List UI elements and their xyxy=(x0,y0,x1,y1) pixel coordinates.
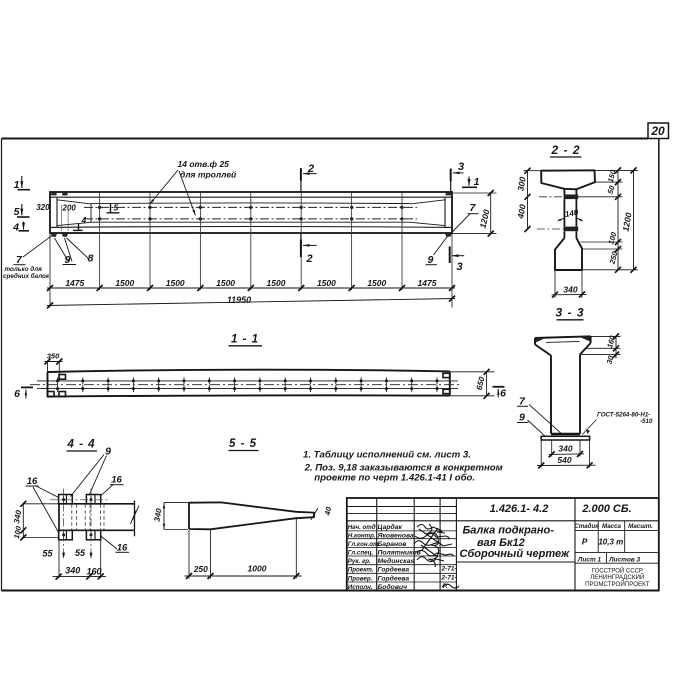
svg-text:6: 6 xyxy=(500,388,506,400)
svg-text:55: 55 xyxy=(75,548,86,558)
svg-text:1500: 1500 xyxy=(166,278,185,288)
svg-text:Гл.спец.: Гл.спец. xyxy=(348,550,374,557)
svg-text:1000: 1000 xyxy=(248,564,267,574)
svg-text:340: 340 xyxy=(65,566,80,576)
svg-text:Нач. отд: Нач. отд xyxy=(348,524,376,531)
svg-text:Цардак: Цардак xyxy=(378,523,403,531)
svg-text:650: 650 xyxy=(475,375,487,391)
svg-text:3 - 3: 3 - 3 xyxy=(555,306,584,320)
svg-text:1500: 1500 xyxy=(367,278,386,288)
svg-text:средних балок: средних балок xyxy=(3,272,50,280)
svg-text:400: 400 xyxy=(515,203,528,220)
svg-text:40: 40 xyxy=(323,505,334,517)
svg-text:4: 4 xyxy=(81,215,87,225)
svg-text:100: 100 xyxy=(12,525,23,540)
svg-text:340: 340 xyxy=(152,507,163,522)
svg-text:ЛЕНИНГРАДСКИЙ: ЛЕНИНГРАДСКИЙ xyxy=(590,573,644,581)
svg-text:только для: только для xyxy=(5,265,43,273)
svg-text:20: 20 xyxy=(650,124,665,138)
svg-text:200: 200 xyxy=(62,204,77,213)
svg-text:Стадия: Стадия xyxy=(574,523,599,530)
svg-text:2 - 2: 2 - 2 xyxy=(550,143,580,157)
svg-text:10,3 т: 10,3 т xyxy=(598,538,623,547)
svg-text:14 отв.ф 25: 14 отв.ф 25 xyxy=(178,159,230,169)
svg-text:340: 340 xyxy=(12,509,23,524)
svg-text:4 - 4: 4 - 4 xyxy=(66,439,95,451)
svg-text:300: 300 xyxy=(515,176,527,192)
svg-text:1475: 1475 xyxy=(418,278,437,288)
svg-text:55: 55 xyxy=(42,549,53,559)
svg-text:16: 16 xyxy=(27,476,38,487)
svg-text:350: 350 xyxy=(47,352,60,361)
svg-text:4: 4 xyxy=(12,222,19,234)
svg-text:Сборочный чертеж: Сборочный чертеж xyxy=(460,548,570,560)
svg-text:Н.контр.: Н.контр. xyxy=(348,533,376,540)
svg-text:2.000 СБ.: 2.000 СБ. xyxy=(581,503,631,515)
svg-text:1475: 1475 xyxy=(65,278,84,288)
svg-text:1500: 1500 xyxy=(267,278,286,288)
svg-text:1. Таблицу исполнений см. лис: 1. Таблицу исполнений см. лист 3. xyxy=(303,450,471,461)
svg-text:7: 7 xyxy=(519,396,526,408)
svg-text:Балка подкрано-: Балка подкрано- xyxy=(463,525,555,537)
svg-text:для троллей: для троллей xyxy=(180,170,237,180)
svg-text:Масса: Масса xyxy=(602,523,622,530)
svg-text:340: 340 xyxy=(558,444,572,454)
svg-text:Провер.: Провер. xyxy=(348,575,373,582)
svg-text:1500: 1500 xyxy=(115,278,134,288)
svg-text:Мединская: Мединская xyxy=(378,557,415,565)
svg-text:Гордеева: Гордеева xyxy=(378,566,410,574)
svg-text:2: 2 xyxy=(307,163,314,175)
svg-text:1500: 1500 xyxy=(317,278,336,288)
svg-text:9: 9 xyxy=(519,412,525,424)
svg-text:250: 250 xyxy=(193,564,208,574)
svg-text:Бодович: Бодович xyxy=(378,583,408,591)
svg-text:Р: Р xyxy=(582,537,588,547)
svg-text:ПРОМСТРОЙПРОЕКТ: ПРОМСТРОЙПРОЕКТ xyxy=(585,580,650,588)
svg-text:5: 5 xyxy=(114,203,119,213)
svg-text:проекте по черт 1.426.1-41 I: проекте по черт 1.426.1-41 I обо. xyxy=(314,473,475,484)
svg-text:340: 340 xyxy=(563,285,577,295)
svg-text:1: 1 xyxy=(474,176,480,188)
svg-text:5 - 5: 5 - 5 xyxy=(229,438,257,450)
svg-text:1.426.1- 4.2: 1.426.1- 4.2 xyxy=(490,503,549,515)
svg-text:Яковенова: Яковенова xyxy=(377,533,415,540)
svg-text:2-71-: 2-71- xyxy=(441,566,457,573)
svg-text:3: 3 xyxy=(458,161,464,173)
svg-text:вая Бк12: вая Бк12 xyxy=(477,537,525,549)
svg-text:-510: -510 xyxy=(640,418,653,425)
svg-text:1 - 1: 1 - 1 xyxy=(231,334,259,346)
svg-text:Баранов: Баранов xyxy=(378,541,407,548)
svg-text:540: 540 xyxy=(557,455,571,465)
svg-text:Исполн.: Исполн. xyxy=(348,584,373,591)
svg-text:Гл.кон.от: Гл.кон.от xyxy=(348,541,379,548)
svg-text:Масшт.: Масшт. xyxy=(628,523,653,530)
svg-text:1200: 1200 xyxy=(620,212,633,233)
svg-text:Рук. гр.: Рук. гр. xyxy=(348,558,371,565)
svg-text:1200: 1200 xyxy=(478,208,492,229)
svg-text:Полятников: Полятников xyxy=(378,550,421,557)
svg-text:1500: 1500 xyxy=(216,278,235,288)
svg-text:2: 2 xyxy=(305,253,312,265)
svg-text:Листов 3: Листов 3 xyxy=(608,557,640,564)
svg-text:320: 320 xyxy=(36,203,50,212)
svg-text:3: 3 xyxy=(456,261,462,273)
svg-text:2-71-: 2-71- xyxy=(441,574,457,581)
svg-text:50: 50 xyxy=(606,184,617,195)
svg-text:Проект.: Проект. xyxy=(348,567,374,574)
svg-text:11950: 11950 xyxy=(227,295,251,305)
svg-text:Гордеева: Гордеева xyxy=(378,574,410,582)
svg-text:16: 16 xyxy=(111,475,122,486)
svg-text:160: 160 xyxy=(86,567,101,577)
svg-text:7: 7 xyxy=(470,202,477,214)
svg-text:Лист 1: Лист 1 xyxy=(577,557,602,564)
svg-text:Р.: Р. xyxy=(443,583,449,590)
svg-text:6: 6 xyxy=(14,388,20,400)
